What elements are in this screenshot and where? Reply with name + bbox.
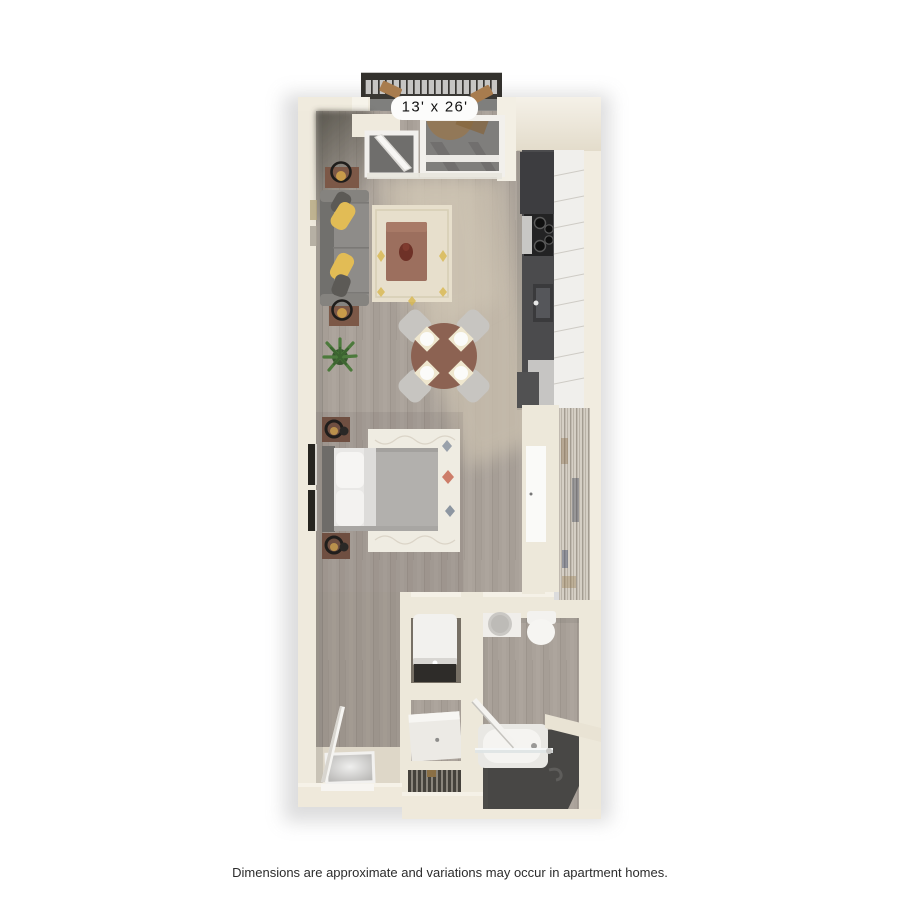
svg-text:13' x 26': 13' x 26' (402, 99, 469, 116)
svg-text:Dimensions are approximate and: Dimensions are approximate and variation… (232, 865, 668, 880)
